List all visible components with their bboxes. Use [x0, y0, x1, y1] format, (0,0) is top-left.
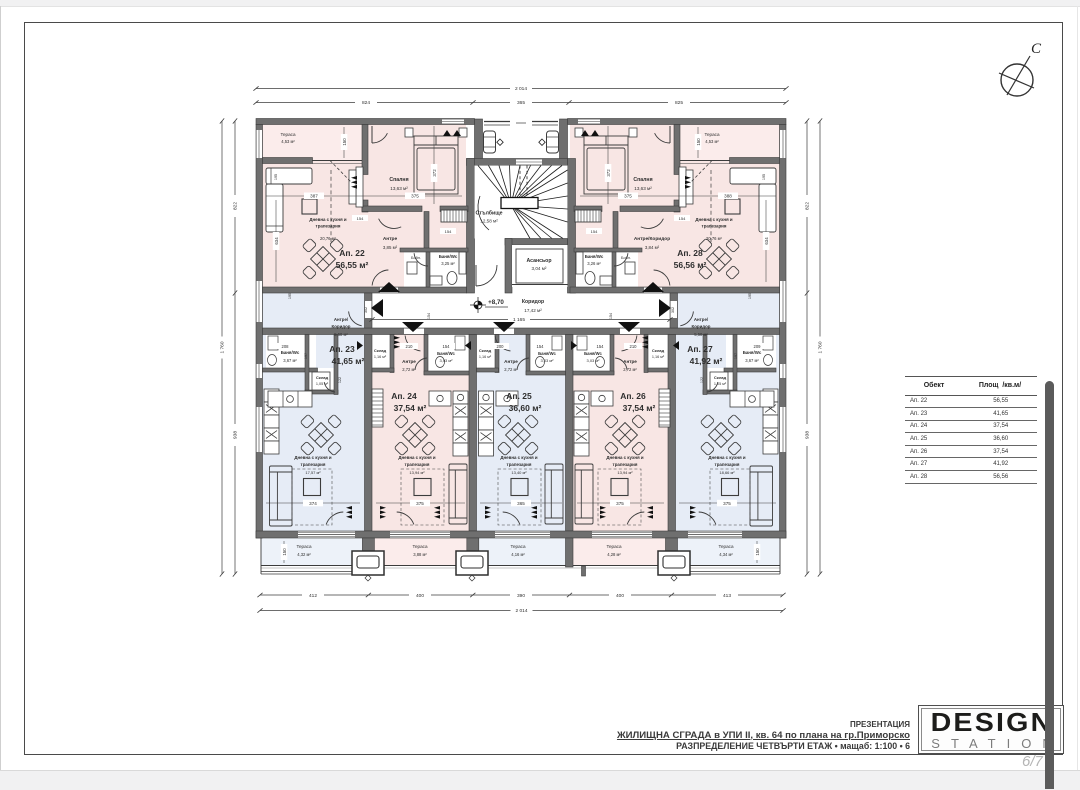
svg-text:154: 154 [357, 216, 364, 221]
svg-text:+8,70: +8,70 [488, 299, 504, 306]
svg-text:Тераса: Тераса [606, 544, 622, 549]
svg-text:Антре: Антре [504, 359, 518, 364]
svg-text:154: 154 [591, 229, 598, 234]
svg-text:412: 412 [309, 593, 317, 599]
svg-text:375: 375 [411, 194, 419, 199]
svg-text:154: 154 [597, 344, 605, 349]
svg-text:210: 210 [630, 344, 638, 349]
svg-text:3,03 м²: 3,03 м² [587, 358, 601, 363]
svg-text:302: 302 [671, 307, 675, 313]
svg-text:Коридор: Коридор [692, 324, 711, 329]
svg-text:Ап. 23: Ап. 23 [329, 344, 355, 354]
svg-text:Коридор: Коридор [522, 299, 544, 305]
svg-text:209: 209 [754, 344, 762, 349]
svg-text:154: 154 [537, 344, 545, 349]
svg-text:1,16 м²: 1,16 м² [652, 355, 665, 359]
svg-text:938: 938 [233, 431, 239, 439]
svg-text:3,67 м²: 3,67 м² [283, 358, 297, 363]
svg-text:Дневна с кухня и: Дневна с кухня и [500, 455, 537, 460]
svg-text:938: 938 [805, 431, 811, 439]
svg-text:56,56 м²: 56,56 м² [674, 260, 707, 270]
svg-text:4,53 м²: 4,53 м² [281, 139, 295, 144]
svg-text:825: 825 [675, 100, 683, 106]
svg-text:2,72 м²: 2,72 м² [402, 367, 416, 372]
svg-text:Антре: Антре [623, 359, 637, 364]
svg-text:375: 375 [616, 501, 624, 506]
svg-text:трапезария: трапезария [613, 462, 638, 467]
svg-text:Антре/: Антре/ [694, 317, 709, 322]
svg-text:Ап. 28: Ап. 28 [677, 248, 703, 258]
svg-text:Дневна с кухня и: Дневна с кухня и [606, 455, 643, 460]
svg-text:150: 150 [696, 138, 701, 146]
svg-text:200: 200 [497, 344, 505, 349]
svg-text:Дневна с кухня и: Дневна с кухня и [294, 455, 331, 460]
svg-text:13,94 м²: 13,94 м² [617, 470, 633, 475]
svg-text:Дневна с кухня и: Дневна с кухня и [398, 455, 435, 460]
svg-text:41,92 м²: 41,92 м² [690, 356, 723, 366]
svg-text:37,54 м²: 37,54 м² [394, 403, 427, 413]
svg-text:1,16 м²: 1,16 м² [374, 355, 387, 359]
svg-text:Ап. 24: Ап. 24 [391, 391, 417, 401]
svg-text:Стълбище: Стълбище [476, 210, 503, 217]
svg-text:3,85 м²: 3,85 м² [383, 245, 398, 250]
svg-text:Склад: Склад [374, 348, 387, 353]
svg-text:122: 122 [700, 377, 704, 383]
svg-text:195: 195 [274, 174, 278, 180]
svg-text:Баня/Wc: Баня/Wc [281, 350, 300, 355]
svg-text:5,58 м²: 5,58 м² [694, 332, 708, 337]
svg-text:1,05 м²: 1,05 м² [316, 382, 329, 386]
svg-text:36,60 м²: 36,60 м² [509, 403, 542, 413]
svg-text:1,05 м²: 1,05 м² [714, 382, 727, 386]
svg-text:Тераса: Тераса [718, 544, 734, 549]
svg-text:1 760: 1 760 [220, 341, 226, 353]
svg-text:13,40 м²: 13,40 м² [511, 470, 527, 475]
svg-text:400: 400 [616, 593, 624, 599]
svg-text:154: 154 [679, 216, 686, 221]
svg-text:3,26 м²: 3,26 м² [587, 261, 601, 266]
svg-text:Коридор: Коридор [332, 324, 351, 329]
svg-text:372: 372 [432, 169, 437, 177]
svg-text:Антре/: Антре/ [334, 317, 349, 322]
svg-text:13,63 м²: 13,63 м² [634, 186, 652, 191]
svg-text:Антре/Коридор: Антре/Коридор [634, 236, 670, 242]
svg-text:13,63 м²: 13,63 м² [390, 186, 408, 191]
svg-text:387: 387 [310, 194, 318, 199]
svg-text:2,72 м²: 2,72 м² [504, 367, 518, 372]
svg-text:4,32 м²: 4,32 м² [297, 552, 311, 557]
svg-text:197: 197 [304, 353, 308, 359]
svg-text:трапезария: трапезария [316, 224, 341, 229]
svg-text:Склад: Склад [479, 348, 492, 353]
svg-text:41,65 м²: 41,65 м² [332, 356, 365, 366]
svg-text:Тераса: Тераса [510, 544, 526, 549]
svg-text:Тераса: Тераса [412, 544, 428, 549]
svg-text:375: 375 [723, 501, 731, 506]
svg-text:Ап. 22: Ап. 22 [339, 248, 365, 258]
svg-text:Баня/Wc: Баня/Wc [538, 351, 556, 356]
svg-text:150: 150 [755, 548, 760, 556]
svg-text:Асансьор: Асансьор [526, 258, 551, 264]
svg-text:Баня/Wc: Баня/Wc [437, 351, 455, 356]
svg-text:Дневна с кухня и: Дневна с кухня и [708, 455, 745, 460]
svg-text:4,34 м²: 4,34 м² [719, 552, 733, 557]
svg-text:Антре: Антре [383, 236, 398, 242]
svg-text:3,88 м²: 3,88 м² [413, 552, 427, 557]
svg-text:трапезария: трапезария [715, 462, 740, 467]
svg-text:Баня/Wc: Баня/Wc [584, 351, 602, 356]
svg-text:17,42 м²: 17,42 м² [524, 308, 542, 313]
svg-text:Дневна с кухня и: Дневна с кухня и [695, 217, 732, 222]
svg-text:195: 195 [762, 174, 766, 180]
svg-text:3,03 м²: 3,03 м² [541, 358, 555, 363]
svg-text:Тераса: Тераса [704, 132, 720, 137]
svg-text:трапезария: трапезария [405, 462, 430, 467]
svg-text:18,66 м²: 18,66 м² [719, 470, 735, 475]
svg-text:154: 154 [609, 313, 613, 319]
svg-text:17,57 м²: 17,57 м² [305, 470, 321, 475]
svg-text:3,03 м²: 3,03 м² [440, 358, 454, 363]
svg-text:208: 208 [282, 344, 290, 349]
svg-text:372: 372 [606, 169, 611, 177]
svg-text:1 760: 1 760 [818, 341, 824, 353]
svg-text:Склад: Склад [652, 348, 665, 353]
svg-text:195: 195 [748, 293, 752, 299]
svg-text:302: 302 [364, 307, 368, 313]
svg-text:56,55 м²: 56,55 м² [336, 260, 369, 270]
svg-text:413: 413 [723, 593, 731, 599]
svg-text:2,72 м²: 2,72 м² [623, 367, 637, 372]
svg-text:Тераса: Тераса [280, 132, 296, 137]
svg-text:Бойл.: Бойл. [411, 256, 421, 260]
svg-text:388: 388 [724, 194, 732, 199]
svg-text:Дневна с кухня и: Дневна с кухня и [309, 217, 346, 222]
svg-text:4,28 м²: 4,28 м² [607, 552, 621, 557]
svg-text:4,53 м²: 4,53 м² [705, 139, 719, 144]
svg-text:3,84 м²: 3,84 м² [645, 245, 660, 250]
svg-text:400: 400 [416, 593, 424, 599]
svg-text:195: 195 [288, 293, 292, 299]
svg-text:Баня/Wc: Баня/Wc [439, 254, 458, 259]
svg-text:4,16 м²: 4,16 м² [511, 552, 525, 557]
svg-text:5,58 м²: 5,58 м² [334, 332, 348, 337]
svg-text:12,58 м²: 12,58 м² [480, 219, 498, 224]
svg-text:822: 822 [805, 202, 811, 210]
svg-text:Баня/Wc: Баня/Wc [743, 350, 762, 355]
svg-text:3,25 м²: 3,25 м² [441, 261, 455, 266]
svg-text:634: 634 [764, 237, 769, 245]
svg-text:Ап. 26: Ап. 26 [620, 391, 646, 401]
svg-text:37,54 м²: 37,54 м² [623, 403, 656, 413]
svg-text:Баня/Wc: Баня/Wc [585, 254, 604, 259]
svg-text:210: 210 [406, 344, 414, 349]
svg-text:1,16 м²: 1,16 м² [479, 355, 492, 359]
svg-text:2 014: 2 014 [515, 608, 527, 614]
svg-text:Ап. 27: Ап. 27 [687, 344, 713, 354]
svg-text:150: 150 [282, 548, 287, 556]
svg-text:150: 150 [342, 138, 347, 146]
svg-text:Спалня: Спалня [389, 177, 408, 183]
svg-text:122: 122 [338, 377, 342, 383]
svg-text:374: 374 [309, 501, 317, 506]
svg-text:Антре: Антре [402, 359, 416, 364]
svg-text:197: 197 [734, 353, 738, 359]
svg-text:822: 822 [233, 202, 239, 210]
svg-text:375: 375 [624, 194, 632, 199]
svg-text:3,04 м²: 3,04 м² [532, 266, 547, 271]
svg-text:634: 634 [274, 237, 279, 245]
svg-text:154: 154 [427, 313, 431, 319]
svg-text:375: 375 [416, 501, 424, 506]
svg-text:Спалня: Спалня [633, 177, 652, 183]
svg-text:Бойл.: Бойл. [621, 256, 631, 260]
svg-text:13,94 м²: 13,94 м² [409, 470, 425, 475]
svg-text:Тераса: Тераса [296, 544, 312, 549]
svg-text:365: 365 [517, 501, 525, 506]
svg-text:Ап. 25: Ап. 25 [506, 391, 532, 401]
svg-text:824: 824 [362, 100, 370, 106]
svg-text:20,76 м²: 20,76 м² [320, 236, 337, 241]
svg-text:1 165: 1 165 [513, 317, 525, 323]
svg-text:154: 154 [445, 229, 452, 234]
svg-text:20,76 м²: 20,76 м² [706, 236, 723, 241]
svg-text:365: 365 [517, 100, 525, 106]
svg-text:154: 154 [443, 344, 451, 349]
svg-text:Склад: Склад [714, 375, 727, 380]
svg-text:2 014: 2 014 [515, 86, 527, 92]
svg-text:3,67 м²: 3,67 м² [745, 358, 759, 363]
svg-text:390: 390 [517, 593, 525, 599]
svg-text:трапезария: трапезария [702, 224, 727, 229]
svg-text:трапезария: трапезария [301, 462, 326, 467]
svg-text:Склад: Склад [316, 375, 329, 380]
svg-text:трапезария: трапезария [507, 462, 532, 467]
